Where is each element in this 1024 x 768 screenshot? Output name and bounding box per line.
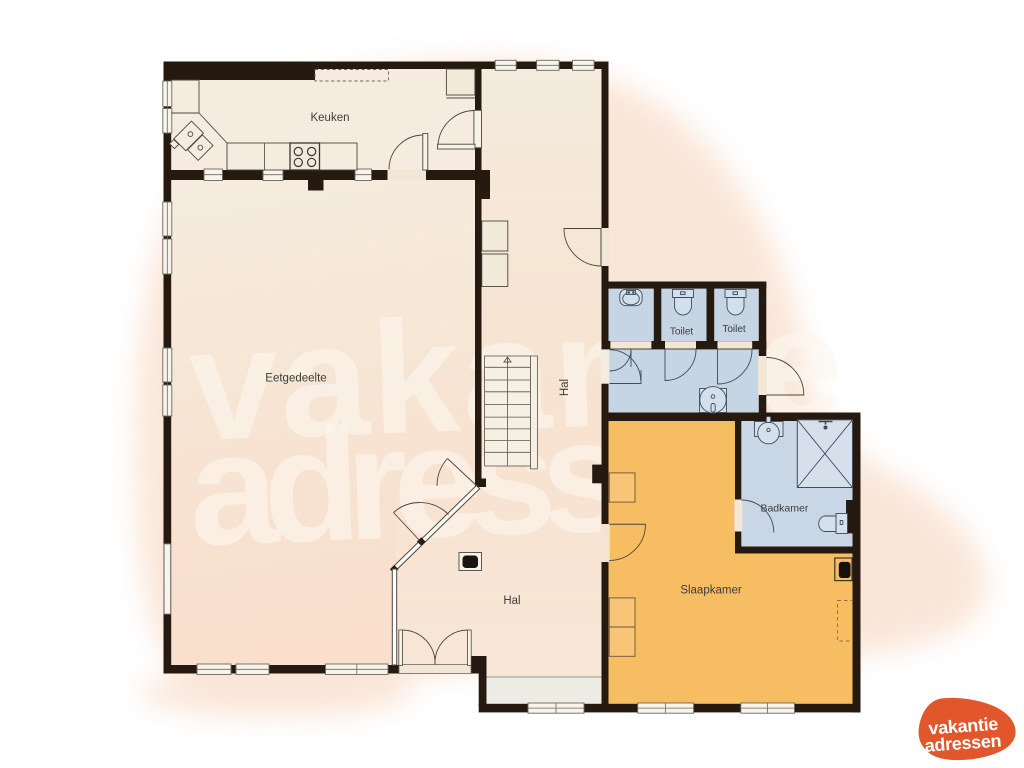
- svg-text:Toilet: Toilet: [670, 327, 694, 338]
- svg-text:Hal: Hal: [503, 595, 520, 607]
- svg-text:Keuken: Keuken: [310, 112, 349, 124]
- svg-text:Hal: Hal: [559, 379, 571, 396]
- svg-text:Eetgedeelte: Eetgedeelte: [265, 373, 326, 385]
- svg-text:Badkamer: Badkamer: [760, 503, 808, 515]
- svg-text:Toilet: Toilet: [722, 324, 746, 335]
- svg-text:Slaapkamer: Slaapkamer: [680, 585, 742, 597]
